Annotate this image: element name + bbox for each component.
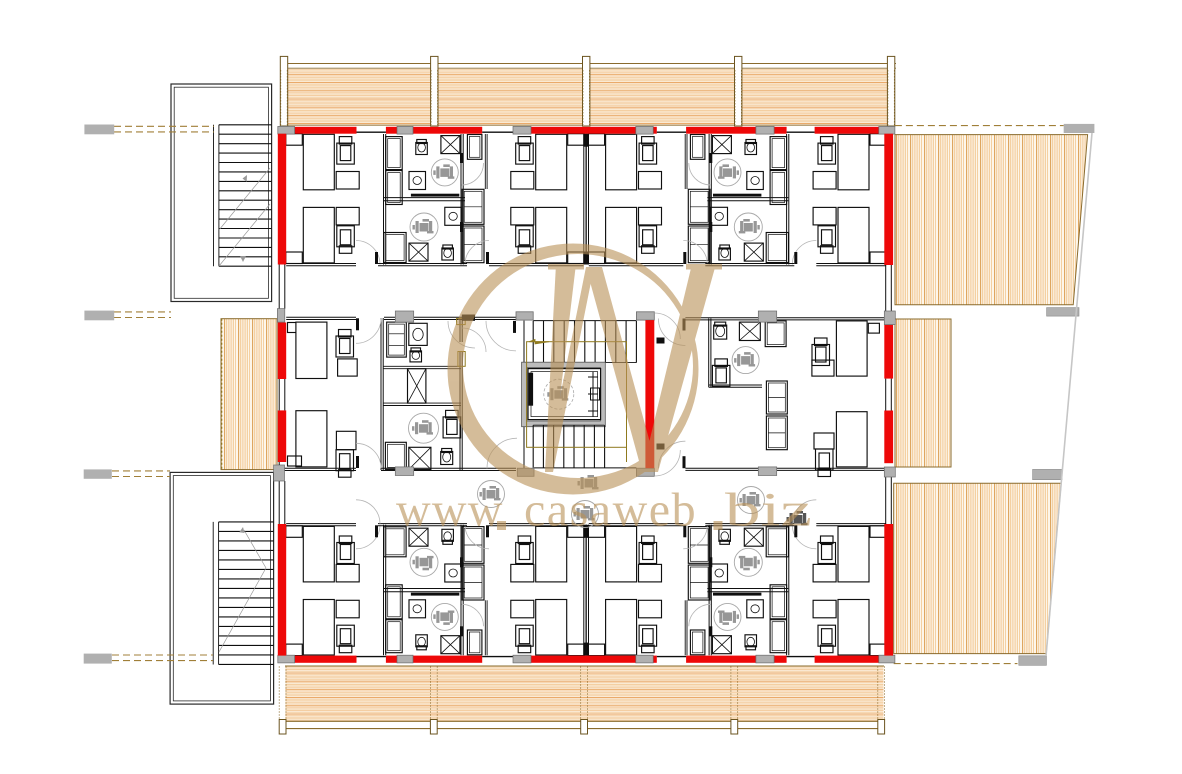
svg-text:casaweb: casaweb — [524, 484, 697, 537]
svg-text:biz: biz — [725, 484, 812, 537]
svg-text:www: www — [396, 484, 504, 537]
